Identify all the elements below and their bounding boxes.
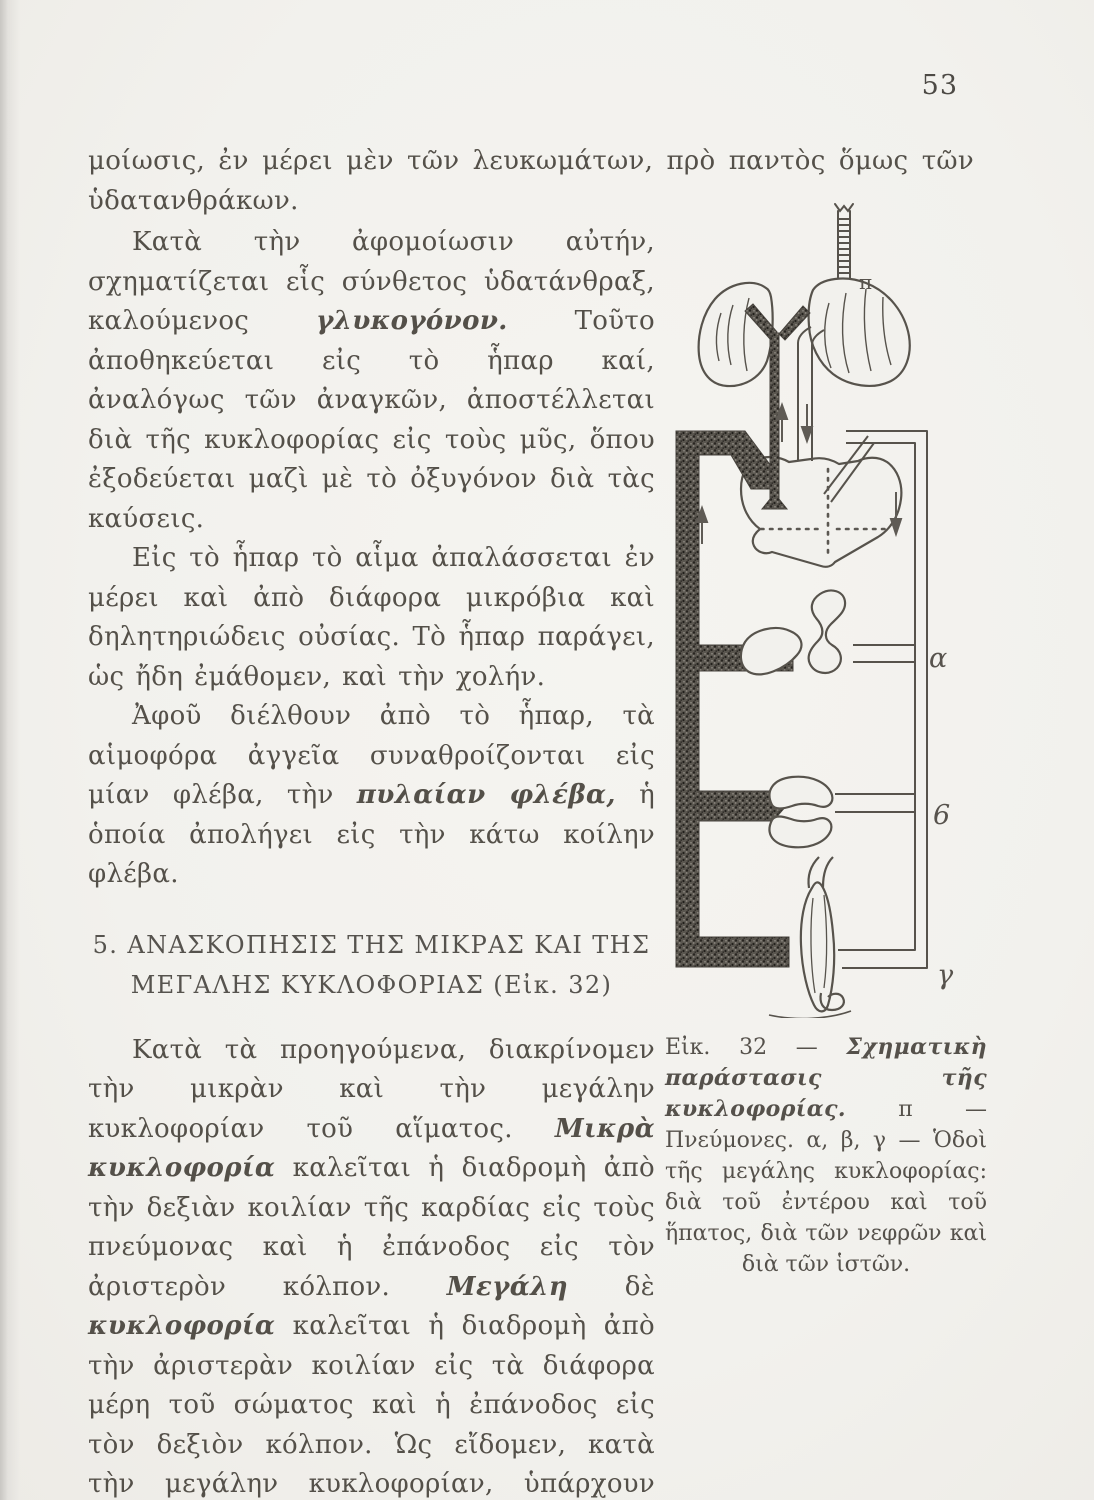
- paragraph-glycogen: Κατὰ τὴν ἀφομοίωσιν αὐτήν, σχηματίζεται …: [88, 223, 655, 539]
- figure-circulation-diagram: π α 6 γ: [661, 193, 1018, 1018]
- arrow-down-pulmonary-icon: [802, 404, 812, 441]
- two-column-layout: Κατὰ τὴν ἀφομοίωσιν αὐτήν, σχηματίζεται …: [88, 223, 1013, 1500]
- heading-line-1: 5. ΑΝΑΣΚΟΠΗΣΙΣ ΤΗΣ ΜΙΚΡΑΣ ΚΑΙ ΤΗΣ: [88, 933, 655, 957]
- paragraph-liver-function: Εἰς τὸ ἧπαρ τὸ αἷμα ἀπαλάσσεται ἐν μέρει…: [88, 539, 655, 697]
- kidney-upper-icon: [769, 777, 832, 809]
- bold-term-circulation: κυκλοφορία: [88, 1311, 275, 1341]
- figure-label-alpha: α: [929, 643, 947, 674]
- figure-label-beta: 6: [933, 800, 950, 831]
- figure-caption: Εἰκ. 32 — Σχηματικὴ παράστασις τῆς κυκλο…: [665, 1032, 987, 1280]
- intestine-icon: [809, 591, 846, 673]
- bold-term-glycogen: γλυκογόνον.: [316, 306, 508, 336]
- page-content: μοίωσις, ἐν μέρει μὲν τῶν λευκωμάτων, πρ…: [88, 142, 1013, 1500]
- heading-line-2: ΜΕΓΑΛΗΣ ΚΥΚΛΟΦΟΡΙΑΣ (Εἰκ. 32): [88, 973, 655, 997]
- figure-label-gamma: γ: [937, 960, 954, 991]
- caption-run: π — Πνεύμονες. α, β, γ — Ὁδοὶ τῆς μεγάλη…: [665, 1097, 987, 1277]
- page-edge-shadow: [0, 0, 20, 1500]
- bold-term-portal-vein: πυλαίαν φλέβα,: [357, 780, 616, 810]
- caption-run: Εἰκ. 32 —: [665, 1035, 846, 1060]
- bold-term-great: Μεγάλη: [447, 1272, 568, 1302]
- text-run: δὲ: [568, 1272, 655, 1302]
- page-number: 53: [922, 70, 958, 101]
- paragraph-circulations: Κατὰ τὰ προηγούμενα, διακρίνομεν τὴν μικ…: [88, 1031, 655, 1500]
- figure-column: π α 6 γ Εἰκ. 32 — Σχηματικὴ παράστασις τ…: [655, 193, 1013, 1500]
- section-heading: 5. ΑΝΑΣΚΟΠΗΣΙΣ ΤΗΣ ΜΙΚΡΑΣ ΚΑΙ ΤΗΣΜΕΓΑΛΗΣ…: [88, 933, 655, 997]
- text-run: Εἰς τὸ ἧπαρ τὸ αἷμα ἀπαλάσσεται ἐν μέρει…: [88, 543, 655, 692]
- text-column: Κατὰ τὴν ἀφομοίωσιν αὐτήν, σχηματίζεται …: [88, 223, 655, 1500]
- figure-label-pneumones: π: [859, 270, 872, 294]
- book-page: 53 μοίωσις, ἐν μέρει μὲν τῶν λευκωμάτων,…: [0, 0, 1094, 1500]
- paragraph-portal-vein: Ἀφοῦ διέλθουν ἀπὸ τὸ ἧπαρ, τὰ αἱμοφόρα ἀ…: [88, 697, 655, 895]
- kidney-lower-icon: [769, 817, 831, 848]
- text-run: Τοῦτο ἀποθηκεύεται εἰς τὸ ἧπαρ καί, ἀναλ…: [88, 306, 655, 534]
